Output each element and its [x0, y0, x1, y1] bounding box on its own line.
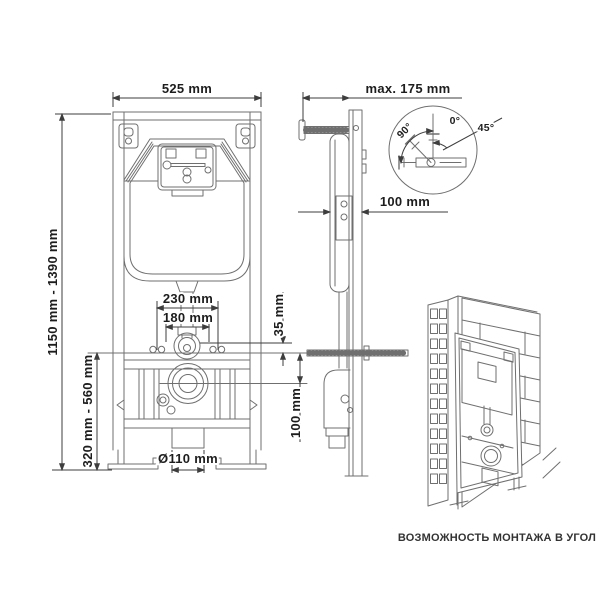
- front-view-dimensions: 525 mm 1150 mm - 1390 mm 320 mm - 560 mm…: [45, 81, 303, 473]
- dim-width: 525 mm: [162, 81, 212, 96]
- anchor-detail-circle: 90° 0° 45°: [389, 106, 502, 194]
- side-view-dimensions: max. 175 mm 100 mm: [298, 81, 462, 212]
- dim-bracket-width: 230 mm: [163, 291, 213, 306]
- dim-drain-diameter: Ø110 mm: [158, 451, 218, 466]
- corner-frame: [450, 333, 526, 505]
- installation-frame-drawing: 525 mm 1150 mm - 1390 mm 320 mm - 560 mm…: [0, 0, 600, 600]
- corner-view: ВОЗМОЖНОСТЬ МОНТАЖА В УГОЛ: [398, 296, 596, 544]
- dim-wall-distance: max. 175 mm: [366, 81, 451, 96]
- cistern: [124, 139, 250, 359]
- hollow-blocks: [431, 309, 447, 484]
- dim-height-range: 1150 mm - 1390 mm: [45, 228, 60, 355]
- dim-inner-width: 180 mm: [163, 310, 213, 325]
- dim-depth: 100 mm: [380, 194, 430, 209]
- detail-tilt-to: 45°: [478, 122, 495, 134]
- corner-view-caption: ВОЗМОЖНОСТЬ МОНТАЖА В УГОЛ: [398, 532, 596, 544]
- front-view: 525 mm 1150 mm - 1390 mm 320 mm - 560 mm…: [45, 81, 307, 473]
- technical-drawing-page: 525 mm 1150 mm - 1390 mm 320 mm - 560 mm…: [0, 0, 600, 600]
- dim-flush-offset: 35 mm: [271, 294, 286, 337]
- dim-lower-range: 320 mm - 560 mm: [80, 355, 95, 468]
- detail-tilt-from: 0°: [450, 115, 461, 127]
- dim-plate-to-outlet: 100 mm: [288, 388, 303, 438]
